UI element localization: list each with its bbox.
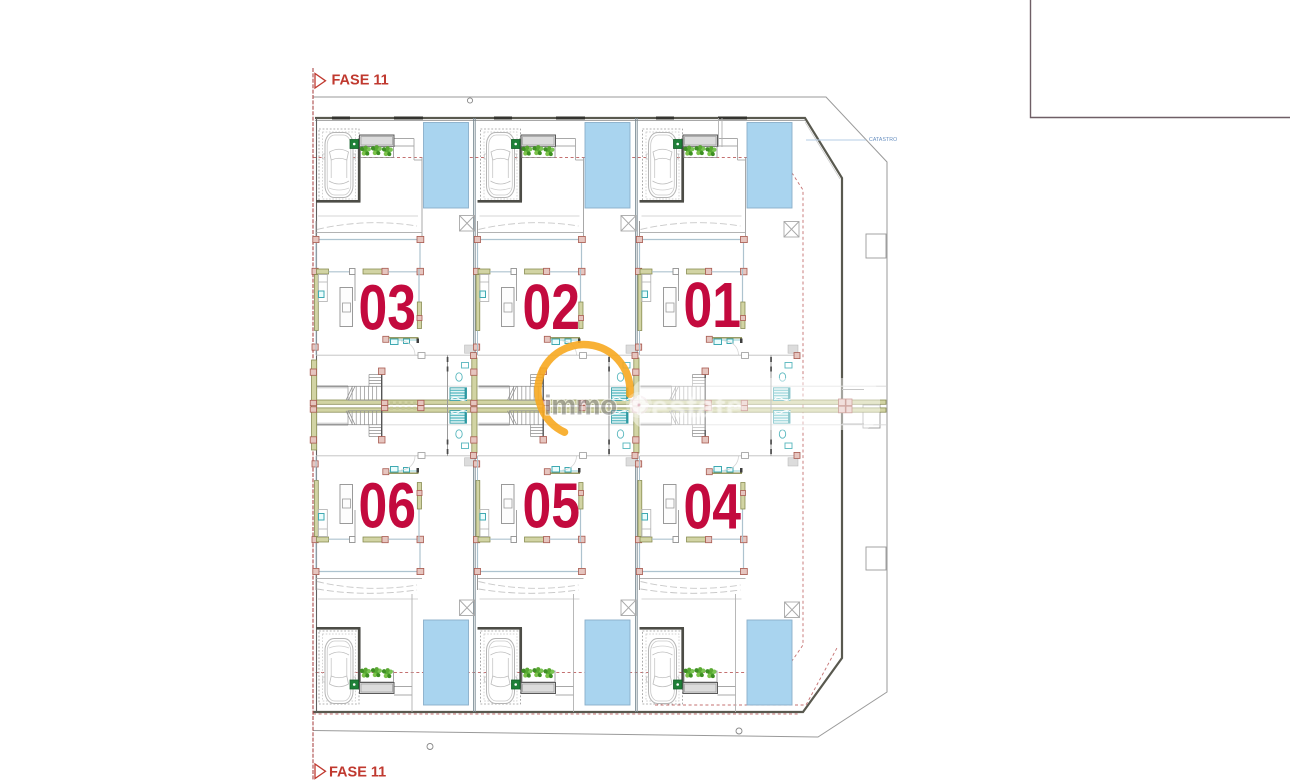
- svg-text:01: 01: [684, 269, 742, 341]
- svg-text:05: 05: [523, 470, 581, 542]
- svg-text:02: 02: [523, 271, 581, 343]
- svg-text:FASE 11: FASE 11: [332, 73, 389, 89]
- svg-text:03: 03: [359, 272, 417, 344]
- svg-text:06: 06: [359, 470, 417, 542]
- svg-text:immo: immo: [544, 390, 617, 421]
- svg-text:FASE 11: FASE 11: [329, 765, 386, 780]
- svg-text:estate: estate: [651, 389, 744, 424]
- svg-text:CATASTRO: CATASTRO: [869, 137, 897, 143]
- svg-text:04: 04: [684, 471, 742, 543]
